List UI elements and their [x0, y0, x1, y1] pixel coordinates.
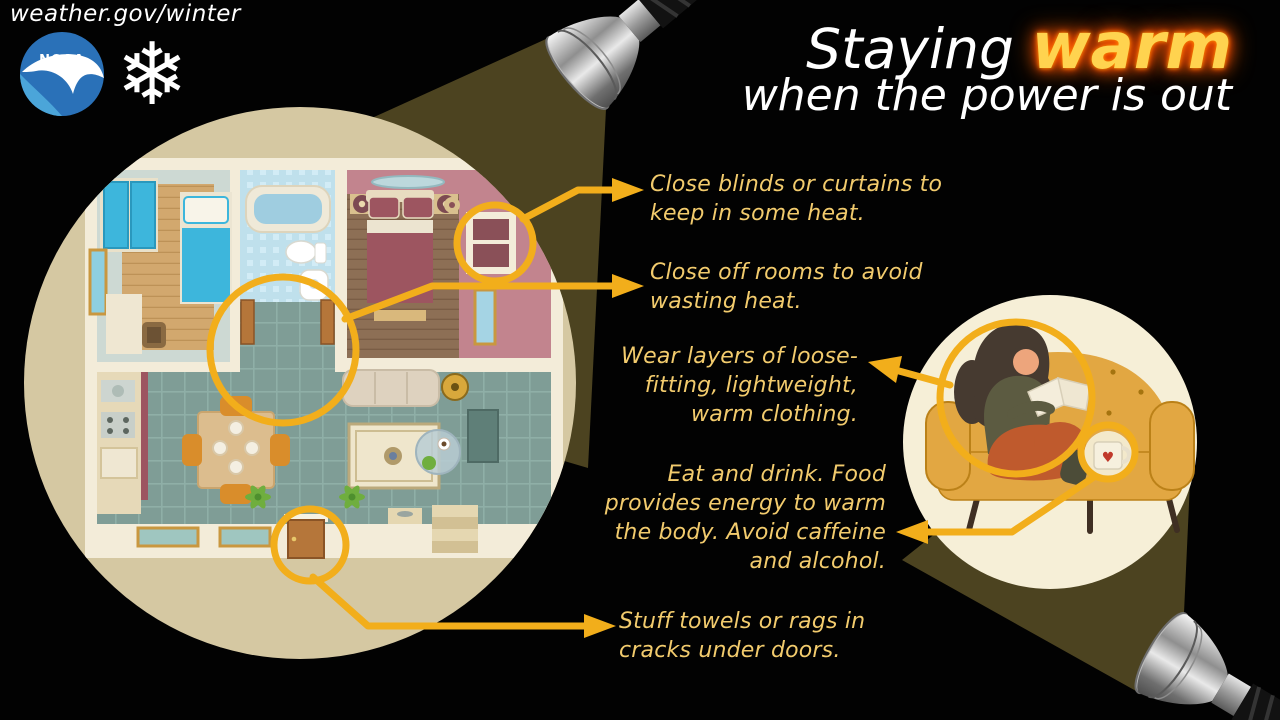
noaa-label: NOAA [39, 53, 85, 68]
callout-stuff-towels: Stuff towels or rags in cracks under doo… [619, 607, 865, 665]
title-subtitle: when the power is out [742, 74, 1232, 118]
arrowhead-towels-icon [584, 614, 616, 638]
snowflake-icon: ❄ [116, 25, 188, 125]
page-title: Staying warm when the power is out [742, 12, 1232, 118]
callout-close-rooms: Close off rooms to avoid wasting heat. [650, 258, 923, 316]
infographic-stage: ♥ NOAA ❄ weather.gov/winter Staying warm… [0, 0, 1280, 720]
callout-close-blinds: Close blinds or curtains to keep in some… [650, 170, 942, 228]
callout-eat-drink: Eat and drink. Food provides energy to w… [605, 460, 886, 576]
arrowhead-eat-icon [896, 520, 928, 544]
heart-icon: ♥ [1102, 450, 1115, 466]
arrowhead-blinds-icon [612, 178, 644, 202]
couch-reading-illustration: ♥ [903, 295, 1197, 589]
arrowhead-layers-icon [868, 356, 902, 383]
noaa-logo: NOAA [20, 32, 104, 116]
callout-wear-layers: Wear layers of loose- fitting, lightweig… [621, 342, 858, 429]
arrowhead-rooms-icon [612, 274, 644, 298]
site-url: weather.gov/winter [10, 1, 241, 29]
